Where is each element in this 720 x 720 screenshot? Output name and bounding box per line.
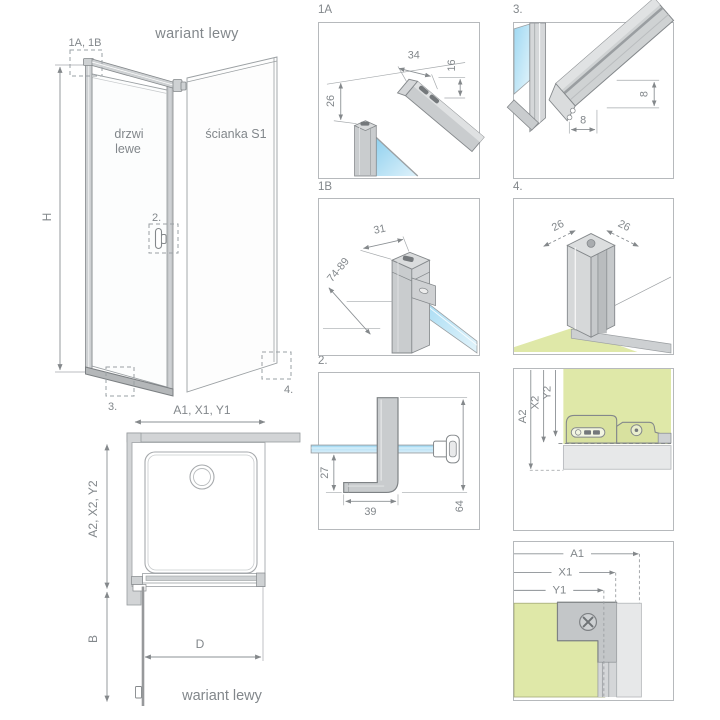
tray-band [563,446,671,470]
detail-2-drawing: 27 39 64 [319,373,477,527]
detail-3-title: 3. [513,4,523,16]
detail-1b-title: 1B [318,181,332,193]
dim-a2: A2 [517,409,529,423]
detail-3-drawing: 8 8 [514,23,671,176]
dim-26-right: 26 [616,218,632,234]
door-label-line1: drzwi [114,127,143,141]
dim-a1: A1 [570,548,584,560]
dim-74-89: 74-89 [325,256,352,285]
installation-diagram: wariant lewy H [0,0,720,720]
plan-view-drawing: A2, X2, Y2 B D wariant lewy [85,425,315,717]
corner-post-profile [567,234,614,338]
detail-2-box: 27 39 64 [318,372,480,530]
dim-39: 39 [364,506,376,518]
detail-a2-box: A2 X2 Y2 [513,368,674,531]
shower-tray [132,443,265,587]
detail-2-title: 2. [318,355,328,367]
glass-clamp [434,435,460,463]
corner-post [167,86,173,392]
detail-3-box: 8 8 [513,22,674,179]
door-label-line2: lewe [115,142,141,156]
dim-34: 34 [408,50,420,62]
detail-a1-box: A1 X1 Y1 [513,541,674,701]
detail-a1-drawing: A1 X1 Y1 [514,542,671,698]
support-bar [398,76,485,154]
tray-band [617,603,642,697]
dim-64: 64 [454,500,466,512]
detail-1a-title: 1A [318,4,332,16]
width-dimension-label: A1, X1, Y1 [173,403,230,417]
detail-1b-box: 31 74-89 [318,198,480,356]
dim-y2: Y2 [542,386,554,400]
overview-3d-drawing: H [30,30,310,430]
callout-corner-label: 4. [284,384,293,396]
width-dimension: A1, X1, Y1 [135,403,265,422]
detail-1b-drawing: 31 74-89 [319,199,477,353]
dim-16: 16 [446,59,458,71]
plan-d-label: D [196,637,205,651]
dim-8-width: 8 [580,115,586,127]
dim-26-left: 26 [550,218,566,234]
dim-27: 27 [319,467,331,479]
wall-profile-glass [355,121,418,176]
detail-1a-box: 26 34 16 [318,22,480,179]
dim-8-height: 8 [638,91,650,97]
callout-handle-label: 2. [152,212,161,224]
detail-1a-drawing: 26 34 16 [319,23,477,176]
dim-26: 26 [325,95,337,107]
detail-a2-drawing: A2 X2 Y2 [514,369,671,528]
wall-post [392,252,435,353]
dim-x2: X2 [530,396,542,410]
side-wall-panel [187,57,277,392]
plan-door-front [132,573,266,591]
detail-a2-dimensions: A2 X2 Y2 [517,370,556,469]
plan-footer: wariant lewy [181,688,263,704]
callout-seal-label: 3. [108,401,117,413]
seal-profile [544,0,678,122]
dim-x1: X1 [558,567,572,579]
detail-4-box: 26 26 [513,198,674,355]
dim-31: 31 [372,223,386,237]
callout-top-label: 1A, 1B [68,37,101,49]
detail-4-title: 4. [513,181,523,193]
leader-line [615,277,671,306]
door-glass-edge [311,445,437,453]
plan-depth-label: A2, X2, Y2 [86,480,100,537]
height-label: H [40,213,54,222]
detail-4-drawing: 26 26 [514,199,671,352]
height-dimension: H [40,65,86,372]
plan-b-label: B [86,635,100,643]
dim-y1: Y1 [552,584,566,596]
wall-label: ścianka S1 [205,127,266,141]
wall-bottom-assembly [507,23,545,132]
